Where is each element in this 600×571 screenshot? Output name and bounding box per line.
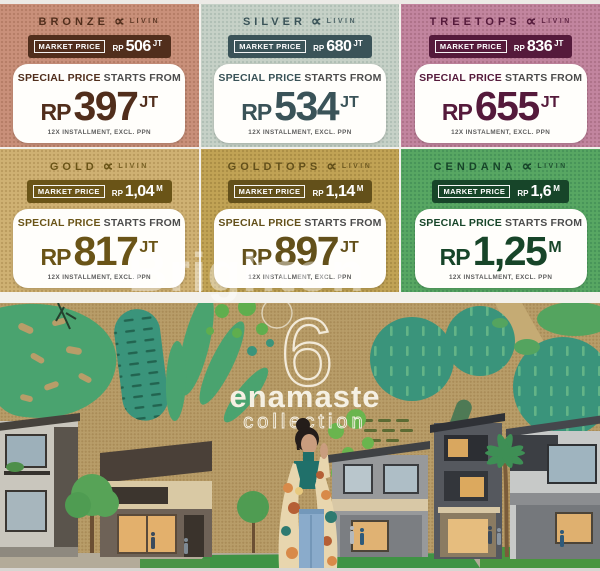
cluster-name: GOLD xyxy=(50,161,98,173)
market-price-label: MARKET PRICE xyxy=(438,185,510,198)
special-price-value: RP 1,25 M xyxy=(419,232,583,271)
ok-livin-logo-icon: ∝ xyxy=(114,14,125,29)
installment-terms: 12X INSTALLMENT, EXCL. PPN xyxy=(17,129,181,136)
market-price-value: RP 1,04 M xyxy=(112,184,163,200)
card-title: GOLD ∝ LIVIN xyxy=(50,159,149,174)
market-price-badge: MARKET PRICE RP 1,14 M xyxy=(228,180,373,203)
card-goldtops: GOLDTOPS ∝ LIVIN MARKET PRICE RP 1,14 M … xyxy=(201,149,400,292)
market-price-value: RP 836 JT xyxy=(514,39,564,55)
collection-title: enamaste xyxy=(229,379,380,414)
ok-livin-logo-icon: ∝ xyxy=(326,159,337,174)
market-price-value: RP 680 JT xyxy=(313,39,363,55)
brand-label: LIVIN xyxy=(130,18,160,25)
ok-livin-logo-icon: ∝ xyxy=(526,14,537,29)
card-title: CENDANA ∝ LIVIN xyxy=(434,159,568,174)
special-price-value: RP 397 JT xyxy=(17,87,181,126)
cluster-name: TREETOPS xyxy=(430,16,521,28)
market-price-label: MARKET PRICE xyxy=(234,40,306,53)
special-price-panel: SPECIAL PRICESTARTS FROM RP 397 JT 12X I… xyxy=(13,64,185,143)
center-house-illustration xyxy=(328,441,430,557)
cluster-name: BRONZE xyxy=(39,16,109,28)
poster-page: BRONZE ∝ LIVIN MARKET PRICE RP 506 JT SP… xyxy=(0,0,600,571)
special-price-panel: SPECIAL PRICESTARTS FROM RP 534 JT 12X I… xyxy=(214,64,386,143)
ok-livin-logo-icon: ∝ xyxy=(311,14,322,29)
woman-model xyxy=(279,418,338,568)
installment-terms: 12X INSTALMENT, EXCL. PPN xyxy=(419,129,583,136)
card-gold: GOLD ∝ LIVIN MARKET PRICE RP 1,04 M SPEC… xyxy=(0,149,199,292)
card-bronze: BRONZE ∝ LIVIN MARKET PRICE RP 506 JT SP… xyxy=(0,4,199,147)
cluster-name: CENDANA xyxy=(434,161,517,173)
market-price-value: RP 1,14 M xyxy=(312,184,363,200)
special-price-panel: SPECIAL PRICESTARTS FROM RP 1,25 M 12X I… xyxy=(415,209,587,288)
card-treetops: TREETOPS ∝ LIVIN MARKET PRICE RP 836 JT … xyxy=(401,4,600,147)
card-title: SILVER ∝ LIVIN xyxy=(243,14,357,29)
cluster-name: GOLDTOPS xyxy=(228,161,322,173)
market-price-label: MARKET PRICE xyxy=(33,185,105,198)
market-price-value: RP 1,6 M xyxy=(517,184,560,200)
special-price-panel: SPECIAL PRICESTARTS FROM RP 817 JT 12X I… xyxy=(13,209,185,288)
hero-banner: 6 enamaste collection xyxy=(0,303,600,568)
right-house-illustration xyxy=(430,413,600,559)
ok-livin-logo-icon: ∝ xyxy=(103,159,114,174)
special-price-panel: SPECIAL PRICESTARTS FROM RP 655 JT 12X I… xyxy=(415,64,587,143)
cluster-name: SILVER xyxy=(243,16,306,28)
card-title: TREETOPS ∝ LIVIN xyxy=(430,14,572,29)
installment-terms: 12X INSTALLMENT, EXCL. PPN xyxy=(218,274,382,281)
market-price-badge: MARKET PRICE RP 506 JT xyxy=(28,35,172,58)
section-divider xyxy=(0,292,600,303)
brand-label: LIVIN xyxy=(118,163,148,170)
card-title: GOLDTOPS ∝ LIVIN xyxy=(228,159,373,174)
price-cards-grid: BRONZE ∝ LIVIN MARKET PRICE RP 506 JT SP… xyxy=(0,4,600,292)
market-price-label: MARKET PRICE xyxy=(234,185,306,198)
market-price-badge: MARKET PRICE RP 680 JT xyxy=(228,35,372,58)
card-cendana: CENDANA ∝ LIVIN MARKET PRICE RP 1,6 M SP… xyxy=(401,149,600,292)
installment-terms: 12X INSTALLMENT, EXCL. PPN xyxy=(419,274,583,281)
market-price-label: MARKET PRICE xyxy=(435,40,507,53)
brand-label: LIVIN xyxy=(537,163,567,170)
special-price-value: RP 817 JT xyxy=(17,232,181,271)
special-price-value: RP 897 JT xyxy=(218,232,382,271)
card-silver: SILVER ∝ LIVIN MARKET PRICE RP 680 JT SP… xyxy=(201,4,400,147)
special-price-value: RP 534 JT xyxy=(218,87,382,126)
hero-illustration: 6 enamaste collection xyxy=(0,303,600,568)
brand-label: LIVIN xyxy=(541,18,571,25)
market-price-badge: MARKET PRICE RP 1,04 M xyxy=(27,180,172,203)
market-price-badge: MARKET PRICE RP 1,6 M xyxy=(432,180,568,203)
market-price-label: MARKET PRICE xyxy=(34,40,106,53)
card-title: BRONZE ∝ LIVIN xyxy=(39,14,161,29)
special-price-value: RP 655 JT xyxy=(419,87,583,126)
ok-livin-logo-icon: ∝ xyxy=(522,159,533,174)
brand-label: LIVIN xyxy=(342,163,372,170)
installment-terms: 12X INSTALLMENT, EXCL. PPN xyxy=(218,129,382,136)
brand-label: LIVIN xyxy=(327,18,357,25)
collection-lockup: 6 enamaste collection xyxy=(229,303,380,433)
installment-terms: 12X INSTALLMENT, EXCL. PPN xyxy=(17,274,181,281)
market-price-badge: MARKET PRICE RP 836 JT xyxy=(429,35,573,58)
market-price-value: RP 506 JT xyxy=(112,39,162,55)
special-price-panel: SPECIAL PRICESTARTS FROM RP 897 JT 12X I… xyxy=(214,209,386,288)
